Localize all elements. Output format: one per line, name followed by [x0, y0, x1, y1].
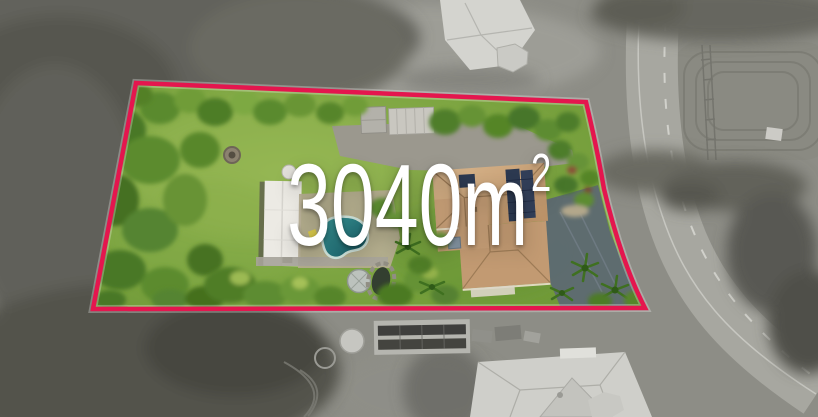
garden-sheds: [361, 107, 435, 135]
area-exponent: 2: [531, 143, 551, 203]
water-tank-grey: [340, 329, 364, 353]
paddock-shed: [765, 127, 783, 141]
area-value: 3040m: [287, 140, 528, 270]
solar-shed: [374, 319, 471, 355]
paddock-mow-rings: [672, 42, 818, 160]
fire-pit: [224, 147, 240, 163]
trampoline: [348, 270, 371, 293]
area-label: 3040m2: [287, 146, 551, 263]
property-aerial-image: 3040m2: [0, 0, 818, 417]
